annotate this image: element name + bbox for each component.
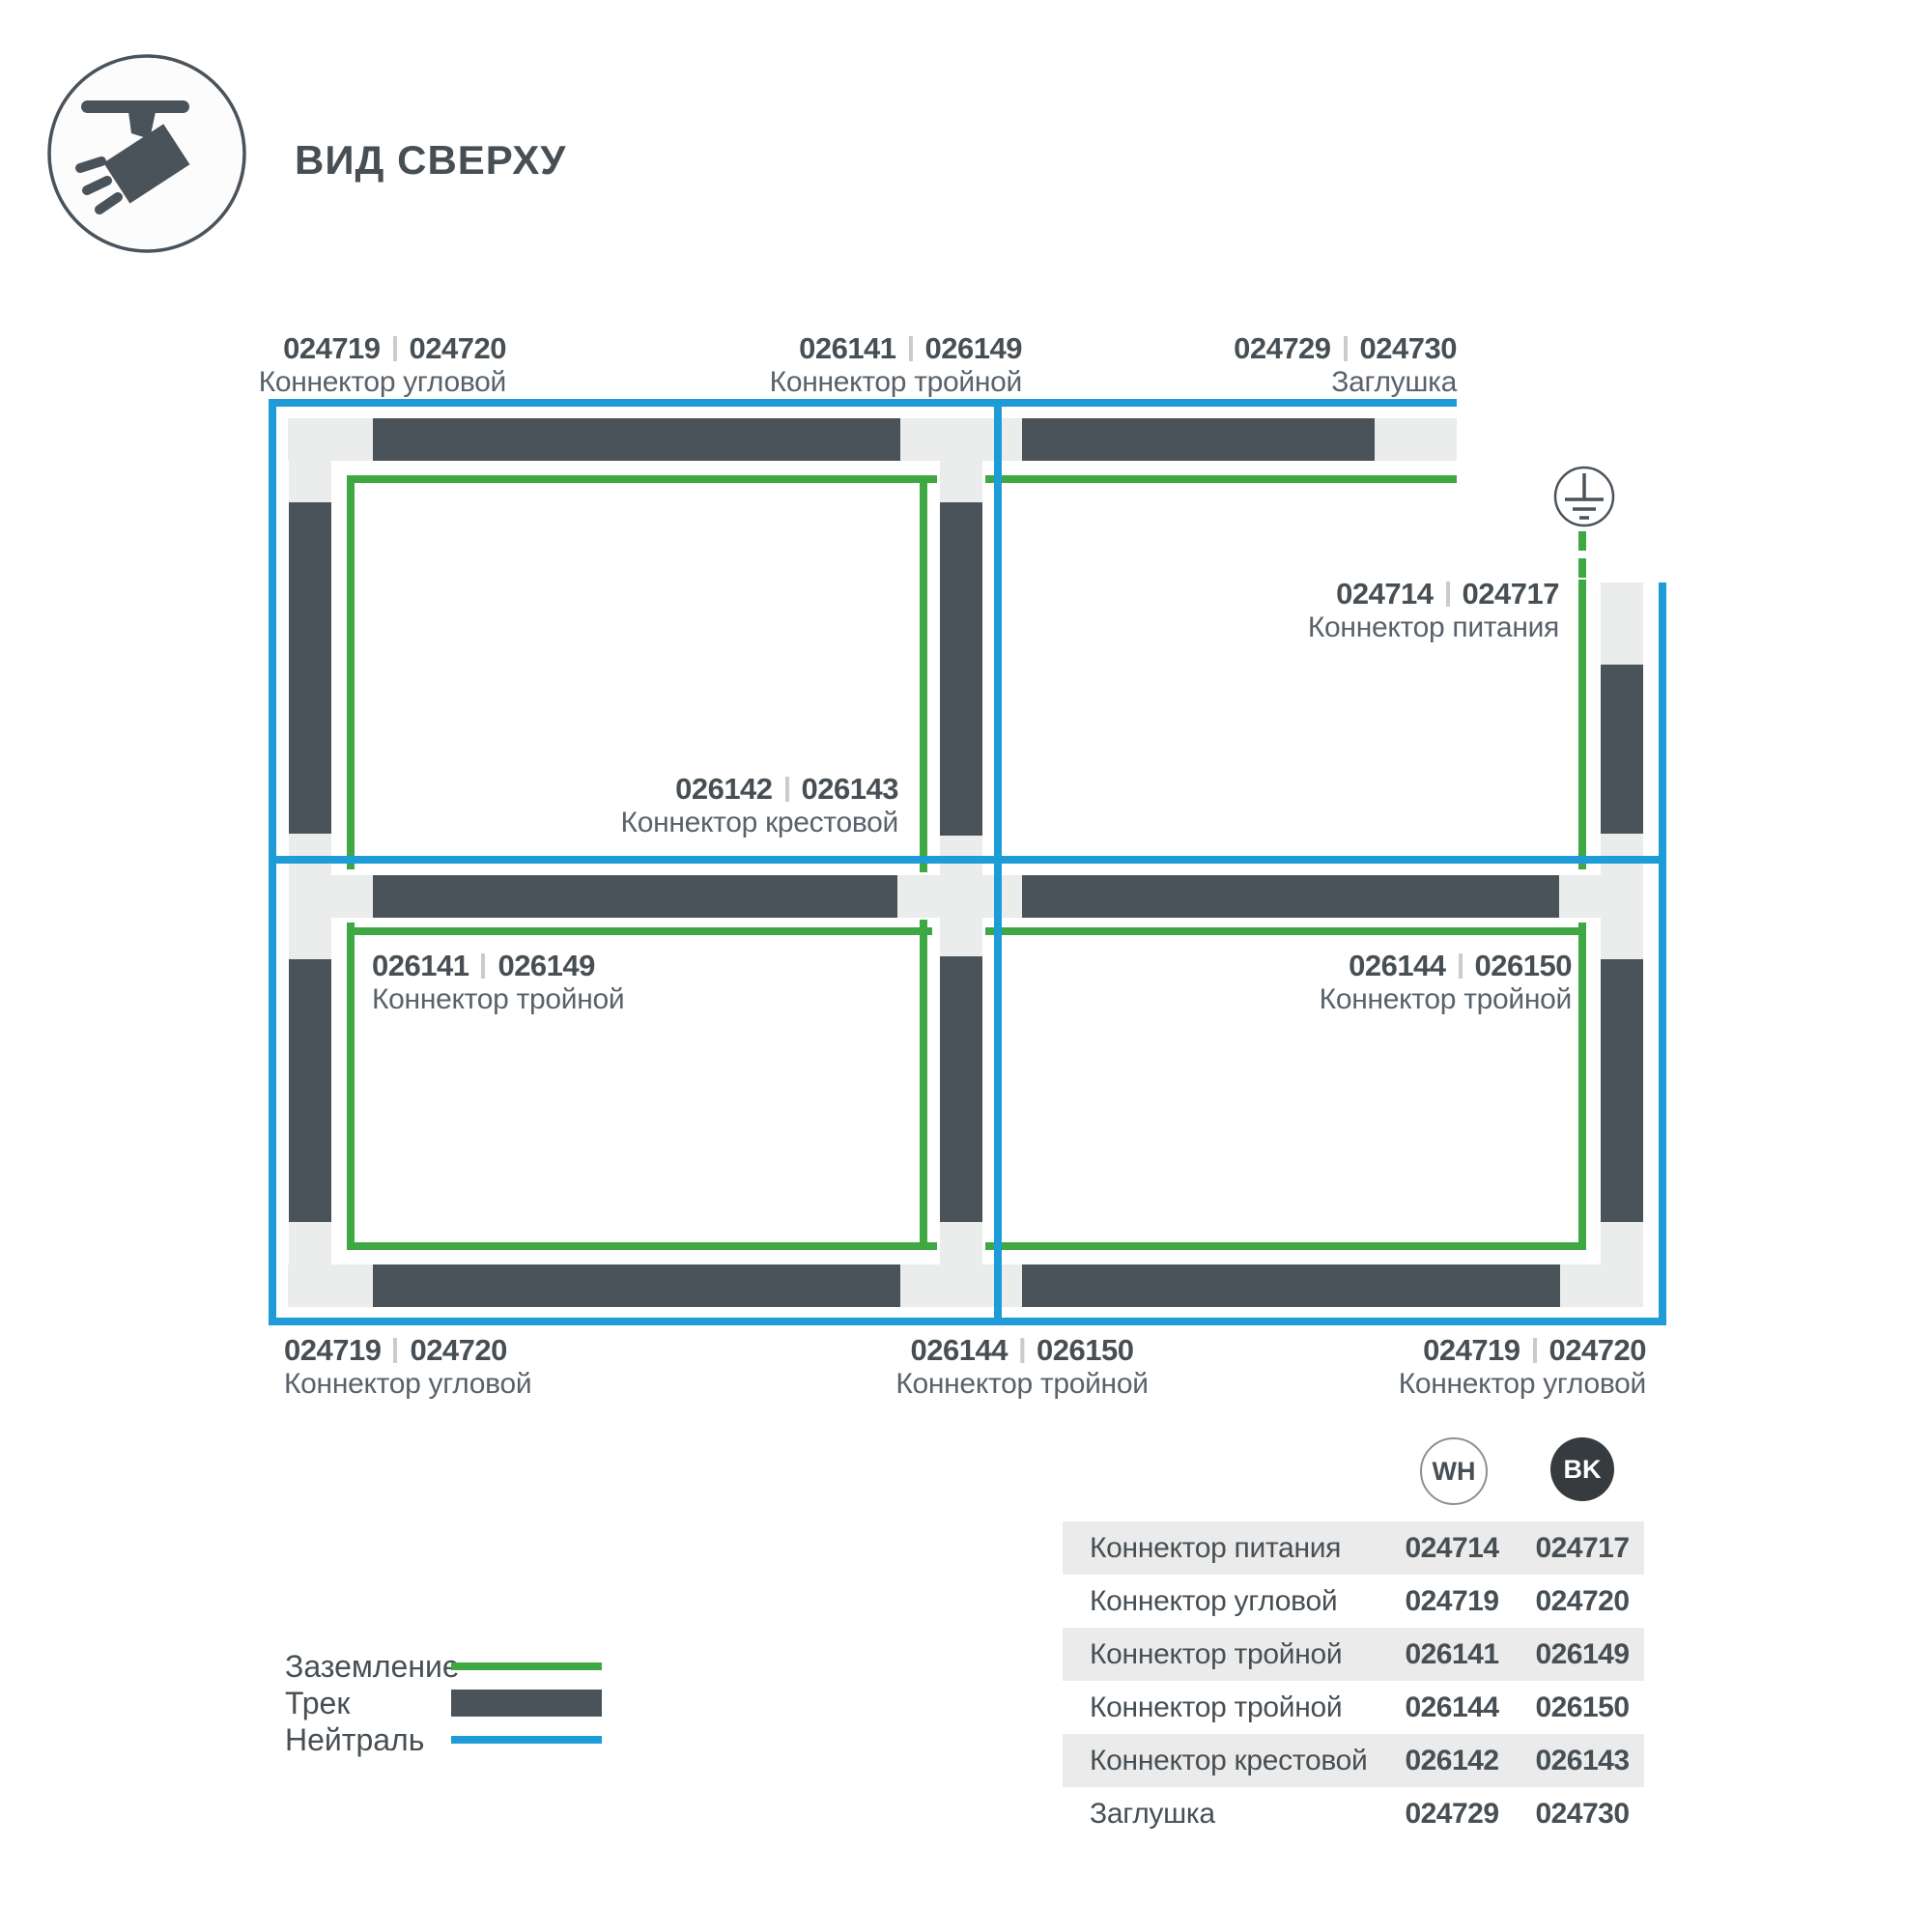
ground-line (347, 923, 355, 1250)
table-code-bk: 024717 (1515, 1532, 1650, 1565)
part-code: 024729 (1234, 331, 1330, 365)
neutral-line (994, 403, 1002, 1321)
part-name: Коннектор угловой (259, 367, 506, 398)
track-segment (373, 875, 897, 918)
connector-plate (289, 418, 331, 502)
part-codes: 026141026149 (372, 950, 624, 982)
ground-line (1578, 923, 1586, 1246)
part-code: 026144 (911, 1333, 1008, 1367)
part-name: Коннектор тройной (372, 984, 624, 1015)
connector-plate (1559, 875, 1601, 918)
table-code-wh: 026142 (1384, 1745, 1520, 1777)
track-segment (1022, 875, 1559, 918)
code-separator (393, 336, 397, 361)
part-codes: 026141026149 (770, 332, 1022, 365)
part-label-power-right: 024714024717Коннектор питания (1308, 578, 1559, 643)
track-segment (373, 418, 900, 461)
part-name: Коннектор тройной (1320, 984, 1572, 1015)
table-code-bk: 026149 (1515, 1638, 1650, 1671)
legend-swatch-track-bar (451, 1690, 602, 1717)
color-badge-bk: BK (1550, 1437, 1614, 1501)
connector-plate (289, 834, 331, 959)
track-segment (289, 959, 331, 1222)
legend-swatch-ground-line (451, 1662, 602, 1670)
part-name: Коннектор угловой (1399, 1369, 1646, 1400)
table-row: Коннектор тройной026144026150 (1063, 1681, 1644, 1734)
part-code: 024714 (1336, 577, 1433, 611)
part-code: 024720 (410, 331, 506, 365)
table-part-name: Коннектор питания (1090, 1532, 1341, 1565)
code-separator (1446, 582, 1450, 607)
table-part-name: Коннектор крестовой (1090, 1745, 1367, 1777)
part-code: 026144 (1349, 949, 1445, 982)
ground-line (348, 475, 937, 483)
part-codes: 024719024720 (284, 1334, 531, 1367)
neutral-line (269, 399, 276, 1325)
part-label-tee-mid-right: 026144026150Коннектор тройной (1320, 950, 1572, 1015)
part-codes: 026142026143 (621, 773, 898, 806)
connector-plate (940, 461, 982, 502)
code-separator (1459, 953, 1463, 979)
table-part-name: Коннектор тройной (1090, 1638, 1342, 1671)
table-code-wh: 026144 (1384, 1691, 1520, 1724)
code-separator (785, 777, 789, 802)
ground-line (920, 479, 927, 872)
legend-label-ground-line: Заземление (285, 1649, 460, 1684)
part-label-corner-top-left: 024719024720Коннектор угловой (259, 332, 506, 398)
table-row: Коннектор тройной026141026149 (1063, 1628, 1644, 1681)
neutral-line (1659, 582, 1666, 1325)
part-code: 024720 (1549, 1333, 1646, 1367)
neutral-line (269, 1318, 1666, 1325)
code-separator (1533, 1338, 1537, 1363)
code-separator (481, 953, 485, 979)
connector-plate (1601, 582, 1643, 665)
neutral-line (269, 399, 1457, 407)
color-badge-wh: WH (1420, 1437, 1488, 1505)
neutral-line (269, 856, 1666, 864)
legend-label-neutral-line: Нейтраль (285, 1722, 424, 1757)
part-codes: 026144026150 (895, 1334, 1148, 1367)
part-label-cross-center: 026142026143Коннектор крестовой (621, 773, 898, 838)
ground-line (920, 920, 927, 1246)
catalog-page: ВИД СВЕРХУ 024719024720Коннектор угловой… (0, 0, 1932, 1932)
part-code: 026150 (1475, 949, 1572, 982)
part-code: 026150 (1037, 1333, 1133, 1367)
track-segment (1022, 1264, 1560, 1307)
part-label-endcap-top-right: 024729024730Заглушка (1234, 332, 1457, 398)
table-row: Заглушка024729024730 (1063, 1787, 1644, 1840)
track-segment (373, 1264, 900, 1307)
connector-plate (940, 836, 982, 956)
part-codes: 024714024717 (1308, 578, 1559, 611)
ground-line (985, 1242, 1586, 1250)
table-code-wh: 024729 (1384, 1798, 1520, 1831)
connector-plate (289, 1222, 331, 1307)
part-name: Коннектор угловой (284, 1369, 531, 1400)
part-code: 024717 (1463, 577, 1559, 611)
table-code-bk: 024720 (1515, 1585, 1650, 1618)
code-separator (909, 336, 913, 361)
part-code: 026142 (675, 772, 772, 806)
ground-line (1578, 580, 1586, 869)
part-code: 024719 (1423, 1333, 1520, 1367)
ground-line (352, 927, 932, 935)
track-segment (940, 956, 982, 1222)
earth-ground-icon (1546, 459, 1625, 538)
part-codes: 024719024720 (259, 332, 506, 365)
connector-plate (900, 1264, 1022, 1307)
part-code: 024720 (410, 1333, 506, 1367)
code-separator (1020, 1338, 1024, 1363)
connector-plate (1375, 418, 1457, 461)
track-segment (1601, 665, 1643, 834)
part-name: Коннектор крестовой (621, 808, 898, 838)
part-codes: 024719024720 (1399, 1334, 1646, 1367)
connector-plate (1601, 834, 1643, 959)
part-label-corner-bottom-right: 024719024720Коннектор угловой (1399, 1334, 1646, 1400)
code-separator (393, 1338, 397, 1363)
part-label-tee-mid-left: 026141026149Коннектор тройной (372, 950, 624, 1015)
ground-line (985, 927, 1582, 935)
part-codes: 024729024730 (1234, 332, 1457, 365)
part-name: Коннектор питания (1308, 612, 1559, 643)
table-part-name: Коннектор тройной (1090, 1691, 1342, 1724)
page-title: ВИД СВЕРХУ (295, 137, 566, 184)
connector-plate (940, 1222, 982, 1264)
table-part-name: Заглушка (1090, 1798, 1215, 1831)
part-code: 026141 (372, 949, 469, 982)
connector-plate (1601, 1222, 1643, 1307)
part-code: 024730 (1360, 331, 1457, 365)
part-label-corner-bottom-left: 024719024720Коннектор угловой (284, 1334, 531, 1400)
ground-line (985, 475, 1457, 483)
part-codes: 026144026150 (1320, 950, 1572, 982)
connector-plate (331, 875, 373, 918)
part-code: 026149 (925, 331, 1022, 365)
ground-line (347, 475, 355, 869)
part-code: 024719 (283, 331, 380, 365)
table-part-name: Коннектор угловой (1090, 1585, 1337, 1618)
part-code: 026143 (802, 772, 898, 806)
legend-label-track-bar: Трек (285, 1686, 350, 1720)
table-code-bk: 026150 (1515, 1691, 1650, 1724)
table-row: Коннектор питания024714024717 (1063, 1521, 1644, 1575)
ground-line (348, 1242, 937, 1250)
track-segment (289, 502, 331, 834)
track-segment (1601, 959, 1643, 1222)
table-row: Коннектор угловой024719024720 (1063, 1575, 1644, 1628)
table-code-wh: 026141 (1384, 1638, 1520, 1671)
legend-swatch-neutral-line (451, 1736, 602, 1744)
part-code: 026141 (799, 331, 895, 365)
table-code-wh: 024719 (1384, 1585, 1520, 1618)
part-name: Коннектор тройной (770, 367, 1022, 398)
table-code-bk: 024730 (1515, 1798, 1650, 1831)
ground-line (1578, 558, 1586, 578)
track-segment (940, 502, 982, 836)
track-segment (1022, 418, 1375, 461)
part-code: 024719 (284, 1333, 381, 1367)
part-name: Заглушка (1234, 367, 1457, 398)
part-code: 026149 (497, 949, 594, 982)
part-label-tee-top: 026141026149Коннектор тройной (770, 332, 1022, 398)
part-name: Коннектор тройной (895, 1369, 1148, 1400)
table-code-bk: 026143 (1515, 1745, 1650, 1777)
table-code-wh: 024714 (1384, 1532, 1520, 1565)
part-label-tee-bottom: 026144026150Коннектор тройной (895, 1334, 1148, 1400)
track-light-top-view-icon (45, 52, 248, 255)
table-row: Коннектор крестовой026142026143 (1063, 1734, 1644, 1787)
connector-plate (900, 418, 1022, 461)
code-separator (1344, 336, 1348, 361)
